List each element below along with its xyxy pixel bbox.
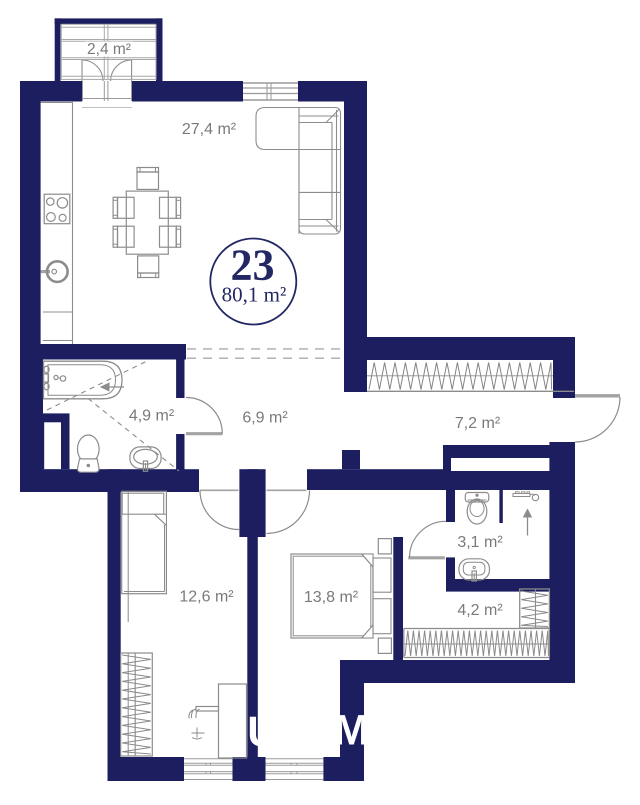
svg-text:4,2 m²: 4,2 m²: [457, 602, 503, 619]
svg-text:80,1 m²: 80,1 m²: [222, 283, 287, 307]
svg-text:M: M: [334, 707, 370, 755]
svg-text:U: U: [247, 708, 278, 756]
svg-text:12,6 m²: 12,6 m²: [179, 589, 234, 606]
svg-text:3,1 m²: 3,1 m²: [457, 534, 503, 551]
svg-text:6,9 m²: 6,9 m²: [242, 410, 288, 427]
svg-text:7,2 m²: 7,2 m²: [455, 415, 501, 432]
svg-text:2,4 m²: 2,4 m²: [87, 41, 131, 58]
svg-text:13,8 m²: 13,8 m²: [304, 589, 359, 606]
svg-text:4,9 m²: 4,9 m²: [129, 408, 175, 425]
svg-text:27,4 m²: 27,4 m²: [182, 121, 237, 138]
